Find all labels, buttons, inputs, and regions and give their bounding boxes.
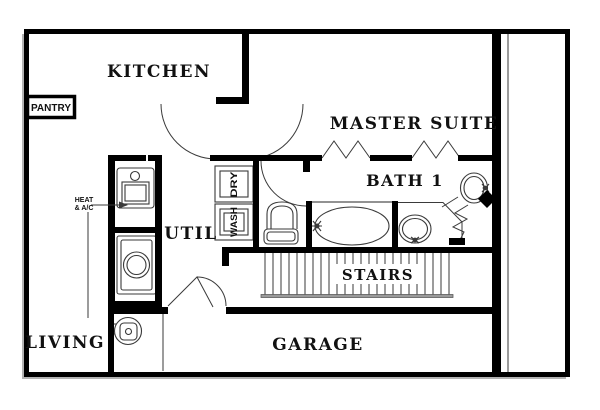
room-label-pantry: PANTRY xyxy=(31,103,71,114)
water-heater-closet-icon xyxy=(117,236,156,294)
wall-tub-vanity xyxy=(392,201,398,250)
wall-toilet-tub xyxy=(306,201,312,250)
room-label-master-suite: MASTER SUITE xyxy=(330,114,499,134)
wall-stairs-top xyxy=(222,247,495,253)
wall-garage-top-left xyxy=(108,307,168,314)
wall-util-right xyxy=(253,161,259,250)
floor-plan: KITCHEN MASTER SUITE BATH 1 UTIL STAIRS … xyxy=(0,0,600,410)
wall-stairs-stub xyxy=(222,253,229,266)
wall-kitchen-right xyxy=(242,31,249,104)
wall-closet-divider xyxy=(112,227,157,233)
wall-closet-right xyxy=(458,155,497,161)
appliance-label-dryer: DRY xyxy=(229,172,239,198)
bathtub-icon xyxy=(311,202,393,248)
wall-closet-top-a xyxy=(108,155,146,161)
room-label-bath1: BATH 1 xyxy=(366,171,444,190)
room-label-garage: GARAGE xyxy=(272,335,364,355)
stair-handrail xyxy=(261,295,453,298)
wall-hall-top xyxy=(210,155,322,161)
floor-plan-drawing: KITCHEN MASTER SUITE BATH 1 UTIL STAIRS … xyxy=(0,0,600,410)
room-label-living: LIVING xyxy=(25,333,105,353)
room-label-util: UTIL xyxy=(164,224,217,244)
wall-kitchen-door-stub xyxy=(216,97,249,104)
wall-closet-bottom xyxy=(108,301,162,308)
room-label-stairs: STAIRS xyxy=(342,266,414,284)
room-label-kitchen: KITCHEN xyxy=(107,62,211,82)
wall-bath-door-stub xyxy=(303,161,310,172)
toilet-icon xyxy=(264,202,298,244)
heat-ac-label-line2: & A/C xyxy=(75,205,94,212)
heat-ac-label-line1: HEAT xyxy=(75,197,94,204)
appliance-label-washer: WASH xyxy=(229,207,239,237)
wall-house-right xyxy=(492,31,501,374)
sink-left-icon xyxy=(399,215,431,243)
furnace-icon xyxy=(117,168,154,208)
wall-closet-top-b xyxy=(148,155,162,161)
wall-garage-top-right xyxy=(226,307,495,314)
wall-closet-mid xyxy=(370,155,412,161)
wall-vanity-stub xyxy=(449,238,465,245)
wall-living-garage xyxy=(108,314,114,374)
